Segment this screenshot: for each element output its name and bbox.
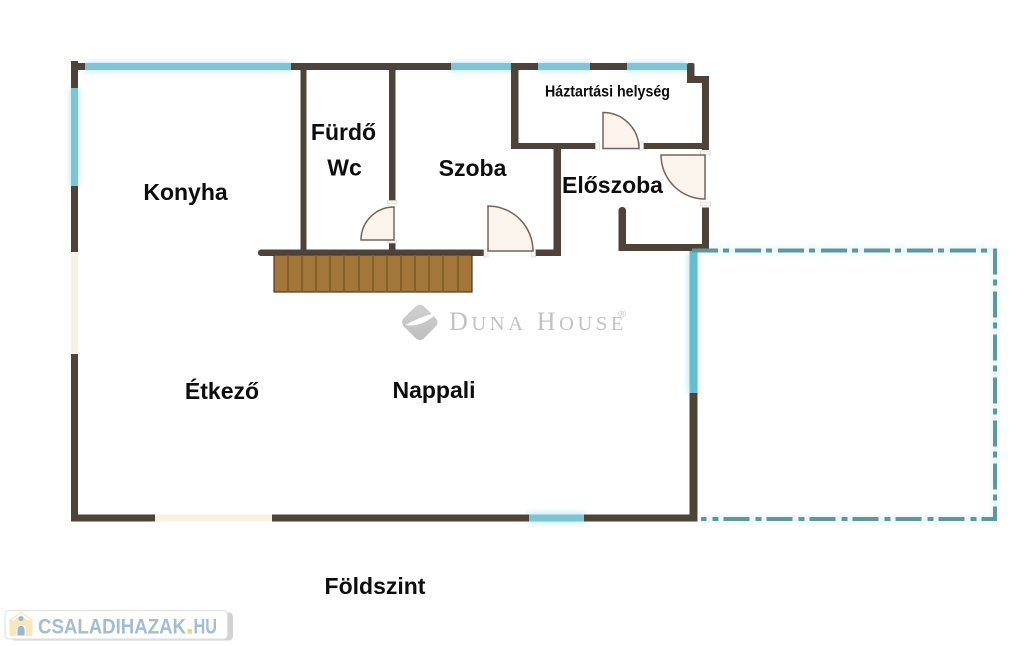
svg-text:Wc: Wc: [327, 155, 362, 181]
svg-text:Fürdő: Fürdő: [311, 119, 376, 145]
svg-text:®: ®: [618, 308, 626, 320]
svg-text:Nappali: Nappali: [392, 377, 475, 403]
svg-text:Háztartási helység: Háztartási helység: [545, 84, 670, 101]
svg-text:Földszint: Földszint: [325, 573, 426, 599]
svg-text:Étkező: Étkező: [185, 377, 259, 404]
svg-text:Szoba: Szoba: [439, 155, 507, 181]
svg-text:Előszoba: Előszoba: [562, 172, 663, 198]
svg-text:Konyha: Konyha: [143, 179, 228, 205]
svg-text:HU: HU: [194, 616, 218, 639]
svg-text:CSALADIHAZAK: CSALADIHAZAK: [38, 616, 186, 639]
